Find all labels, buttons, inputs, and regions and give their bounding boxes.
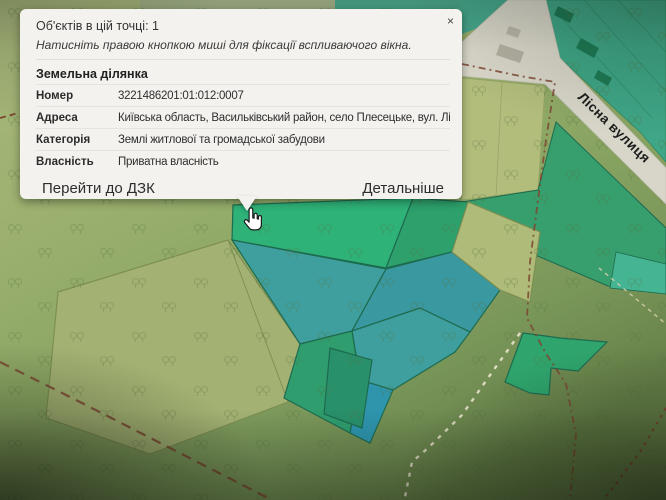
attribute-row: Номер 3221486201:01:012:0007 [36,84,450,106]
popup-close-button[interactable]: × [445,13,456,29]
parcel-attributes: Номер 3221486201:01:012:0007 Адреса Київ… [36,84,450,172]
attribute-label: Категорія [36,133,108,147]
attribute-value: Київська область, Васильківський район, … [118,111,450,125]
attribute-row: Категорія Землі житлової та громадської … [36,128,450,150]
attribute-label: Номер [36,89,108,103]
popup-object-count: Об'єктів в цій точці: 1 [36,19,450,33]
attribute-value: Землі житлової та громадської забудови [118,133,450,147]
attribute-value: Приватна власність [118,155,450,169]
popup-hint: Натисніть правою кнопкою миші для фіксац… [36,38,450,60]
attribute-row: Власність Приватна власність [36,150,450,172]
popup-actions: Перейти до ДЗК Детальніше [36,180,450,197]
attribute-value: 3221486201:01:012:0007 [118,89,450,103]
map-info-popup: × Об'єктів в цій точці: 1 Натисніть прав… [20,9,462,199]
details-link[interactable]: Детальніше [362,180,444,197]
cadastral-map-screen: Лісна вулиця × Об'єктів в цій точці: 1 Н… [0,0,666,500]
attribute-label: Власність [36,155,108,169]
popup-callout-arrow [237,196,257,211]
goto-dzk-link[interactable]: Перейти до ДЗК [42,180,155,197]
parcel-section-title: Земельна ділянка [36,67,450,81]
attribute-label: Адреса [36,111,108,125]
attribute-row: Адреса Київська область, Васильківський … [36,106,450,128]
